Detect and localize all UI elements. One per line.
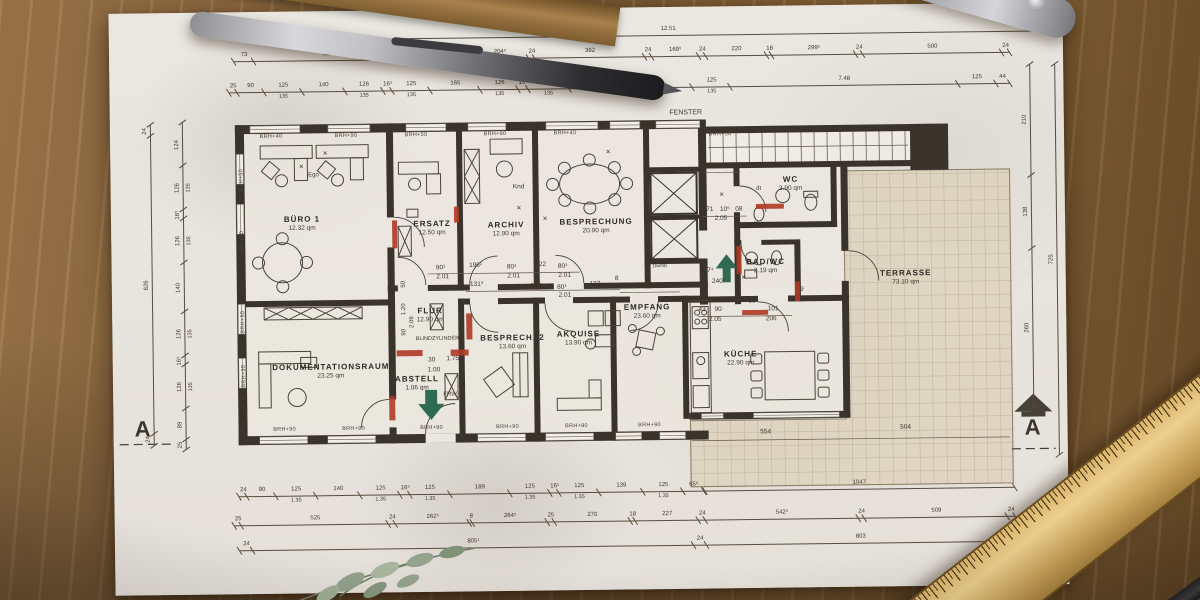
sill-height-label: BRH+50 xyxy=(238,169,244,192)
plan-text: 122 xyxy=(535,261,546,268)
plan-text: FENSTER xyxy=(669,109,702,116)
dimension-chain-h: 1047 xyxy=(704,478,1014,500)
plan-text: 220 xyxy=(717,163,728,170)
desk-photo: BÜRO 112.32 qmERSATZ12.50 qmARCHIV12.90 … xyxy=(0,0,1200,600)
dimension-chain-v: 2462624 xyxy=(141,125,163,445)
plan-text: 2.01 xyxy=(558,272,571,279)
plan-text: 50 xyxy=(401,281,407,288)
room-label-akquise: AKQUISE13.90 qm xyxy=(557,329,601,347)
room-label-dokumentationsraum: DOKUMENTATIONSRAUM23.25 qm xyxy=(272,362,389,381)
eucalyptus-sprig xyxy=(280,492,510,600)
plan-text: 80¹ xyxy=(558,263,567,270)
sill-height-label: BRH+90 xyxy=(484,131,507,137)
plan-text: × xyxy=(543,214,548,223)
sill-height-label: BRH+90 xyxy=(241,365,247,388)
plan-text: × xyxy=(323,149,328,158)
plan-text: BLINDZYLINDER xyxy=(416,336,459,343)
plan-text: 2.01 xyxy=(507,272,520,279)
room-label-besprech2: BESPRECH. 213.60 qm xyxy=(480,333,545,351)
sill-height-label: BRH+50 xyxy=(405,132,428,138)
plan-text: 80¹ xyxy=(503,283,512,290)
plan-text: 90 xyxy=(714,306,721,313)
plan-text: 137 xyxy=(589,280,600,287)
plan-text: 90¹ xyxy=(436,264,445,271)
plan-text: 1.75 xyxy=(446,355,459,362)
room-label-buero1: BÜRO 112.32 qm xyxy=(284,215,320,233)
plan-text: A xyxy=(1024,414,1040,440)
plan-text: 131⁵ xyxy=(470,281,484,288)
plan-text: 1.00 xyxy=(427,366,440,373)
room-label-flur: FLUR12.90 qm xyxy=(417,306,444,324)
sill-height-label: BRH+90 xyxy=(496,424,519,430)
plan-text: × xyxy=(719,190,724,199)
plan-text: 2.01 xyxy=(436,273,449,280)
sill-height-label: BRH+90 xyxy=(342,426,365,432)
sill-height-label: BRH+90 xyxy=(273,427,296,433)
plan-text: 1.20 xyxy=(401,303,407,315)
plan-text: 8 xyxy=(615,275,619,282)
sill-height-label: BRH+50 xyxy=(239,231,245,254)
sill-height-label: BRH+90 xyxy=(240,311,246,334)
plan-text: dt xyxy=(756,186,761,192)
plan-text: 2.09 xyxy=(409,316,415,328)
room-label-kueche: KÜCHE22.90 qm xyxy=(724,349,758,367)
dimension-chain-v: 12412613516⁵12613514012613516⁵1261358925 xyxy=(173,123,195,449)
plan-text: 101 xyxy=(768,305,779,312)
plan-text: × xyxy=(754,218,759,227)
sill-height-label: BRH+40 xyxy=(260,134,283,140)
plan-text: 206 xyxy=(766,315,777,322)
plan-text: 240⁵ xyxy=(712,278,726,285)
room-label-empfang: EMPFANG23.60 qm xyxy=(624,302,671,320)
plan-text: × xyxy=(516,203,521,212)
plan-text: 10⁵ xyxy=(720,206,730,213)
plan-text: × xyxy=(606,147,611,156)
sill-height-label: BRH+90 xyxy=(420,425,443,431)
plan-text: 2.05 xyxy=(715,215,728,222)
plan-text: 9 xyxy=(800,286,804,293)
room-label-terrasse: TERRASSE73.10 qm xyxy=(880,268,932,286)
sill-height-label: BRH+90 xyxy=(638,422,661,428)
plan-text: 80¹ xyxy=(557,284,566,291)
plan-text: × xyxy=(741,273,746,282)
room-label-bad-wc: BAD/WC2.19 qm xyxy=(746,257,785,275)
plan-text: 80¹ xyxy=(507,263,516,270)
dimension-chain-v: 725 xyxy=(1045,64,1068,454)
sill-height-label: BRH+90 xyxy=(335,133,358,139)
plan-text: 504 xyxy=(900,424,911,431)
room-label-wc: WC3.90 qm xyxy=(779,175,803,193)
plan-text: 38 xyxy=(748,297,755,304)
room-label-archiv: ARCHIV12.90 qm xyxy=(488,220,525,238)
plan-text: 257 xyxy=(643,283,654,290)
plan-text: 196¹ xyxy=(469,262,482,269)
sill-height-label: BRH+90 xyxy=(565,423,588,429)
plan-text: 17⁴ xyxy=(704,267,714,274)
room-label-besprechung: BESPRECHUNG20.90 qm xyxy=(559,217,632,235)
plan-text: 08 xyxy=(735,206,742,213)
plan-text: 71 xyxy=(706,206,713,213)
plan-text: 30 xyxy=(428,356,435,363)
plan-text: FRW xyxy=(443,392,457,398)
plan-text: × xyxy=(299,162,304,171)
plan-text: 1twmb xyxy=(652,263,667,269)
plan-text: 90 xyxy=(401,329,407,336)
plan-text: 162 xyxy=(530,282,541,289)
plan-text: 43 xyxy=(698,306,705,313)
plan-text: 2.05 xyxy=(709,316,722,323)
dimension-chain-v: 210138260 xyxy=(1020,64,1042,406)
plan-text: Ego xyxy=(308,172,319,178)
plan-text: Knd xyxy=(513,183,525,190)
room-label-ersatz: ERSATZ12.50 qm xyxy=(413,219,451,237)
plan-text: 2.01 xyxy=(559,292,572,299)
sill-height-label: BRH+50 xyxy=(709,131,732,137)
sill-height-label: BRH+40 xyxy=(554,130,577,136)
room-label-abstell: ABSTELL1.06 qm xyxy=(395,374,439,392)
plan-text: 554 xyxy=(760,428,771,435)
